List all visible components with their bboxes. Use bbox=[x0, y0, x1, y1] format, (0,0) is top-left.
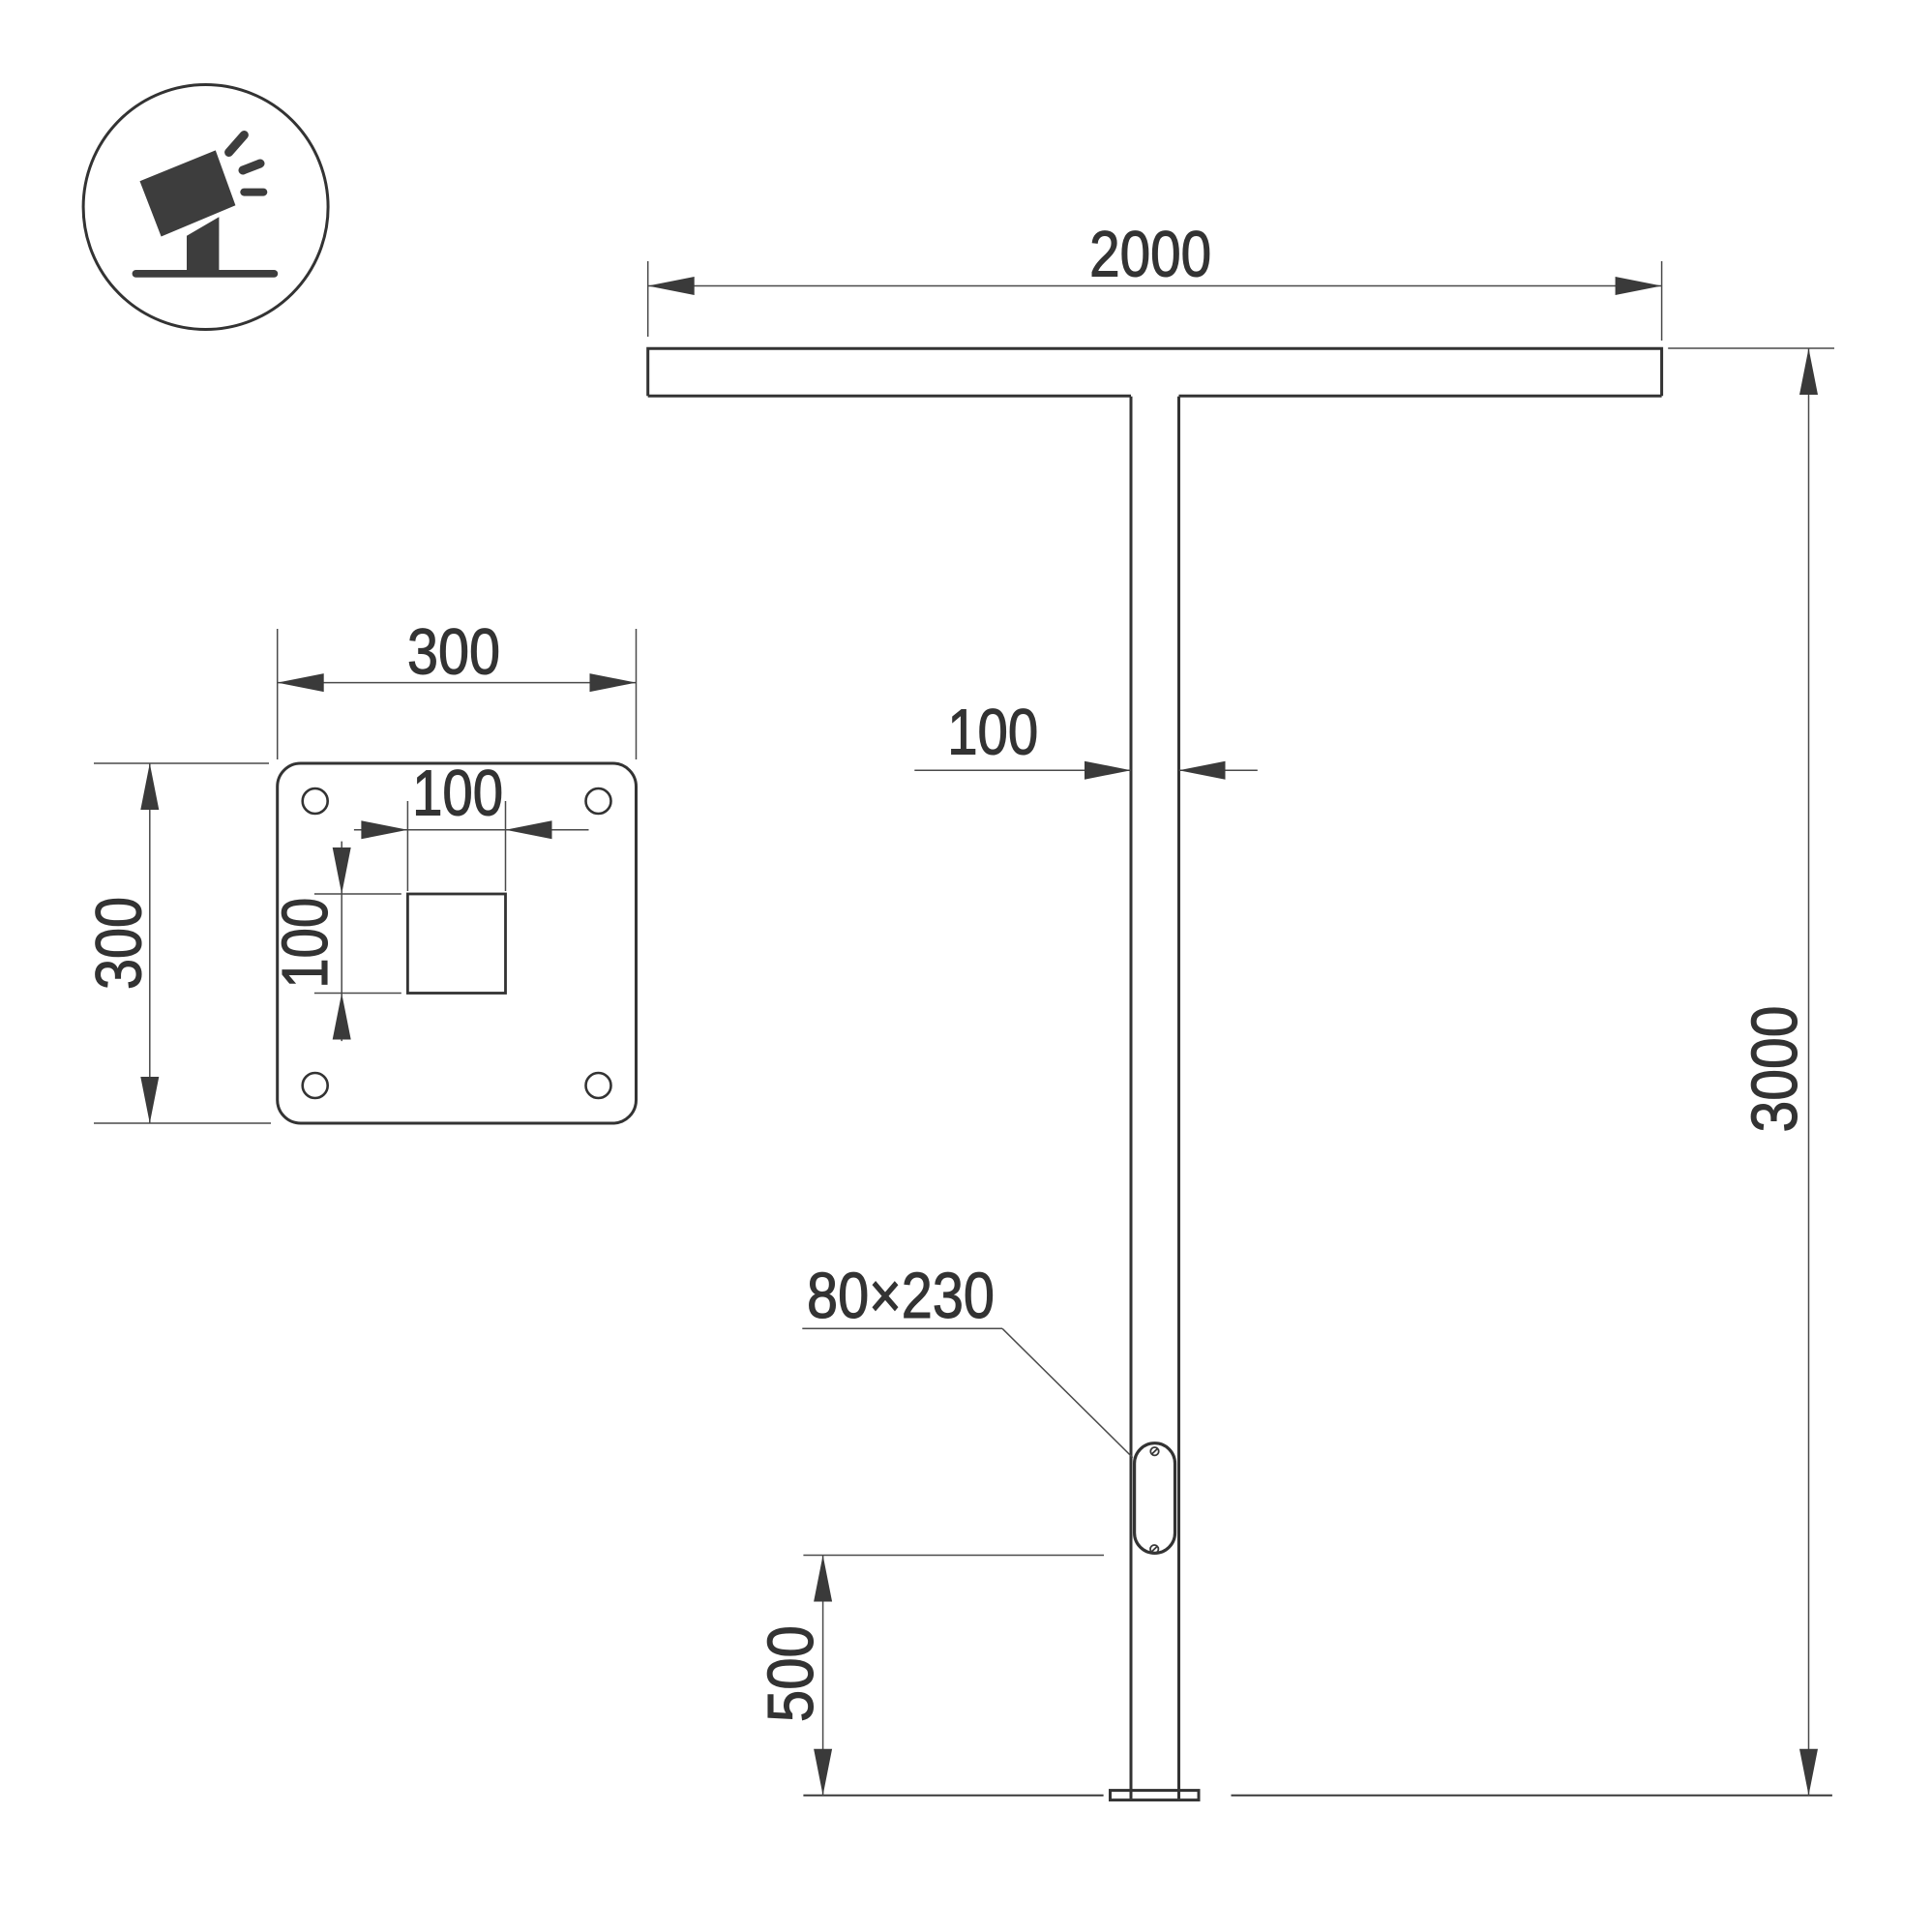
svg-text:300: 300 bbox=[83, 897, 156, 990]
svg-text:80×230: 80×230 bbox=[807, 1260, 995, 1332]
svg-text:2000: 2000 bbox=[1089, 219, 1211, 291]
svg-text:100: 100 bbox=[269, 898, 342, 989]
svg-text:500: 500 bbox=[755, 1625, 827, 1722]
svg-text:100: 100 bbox=[412, 758, 503, 830]
svg-text:3000: 3000 bbox=[1739, 1006, 1811, 1133]
svg-text:300: 300 bbox=[407, 616, 500, 689]
svg-text:100: 100 bbox=[947, 696, 1038, 768]
